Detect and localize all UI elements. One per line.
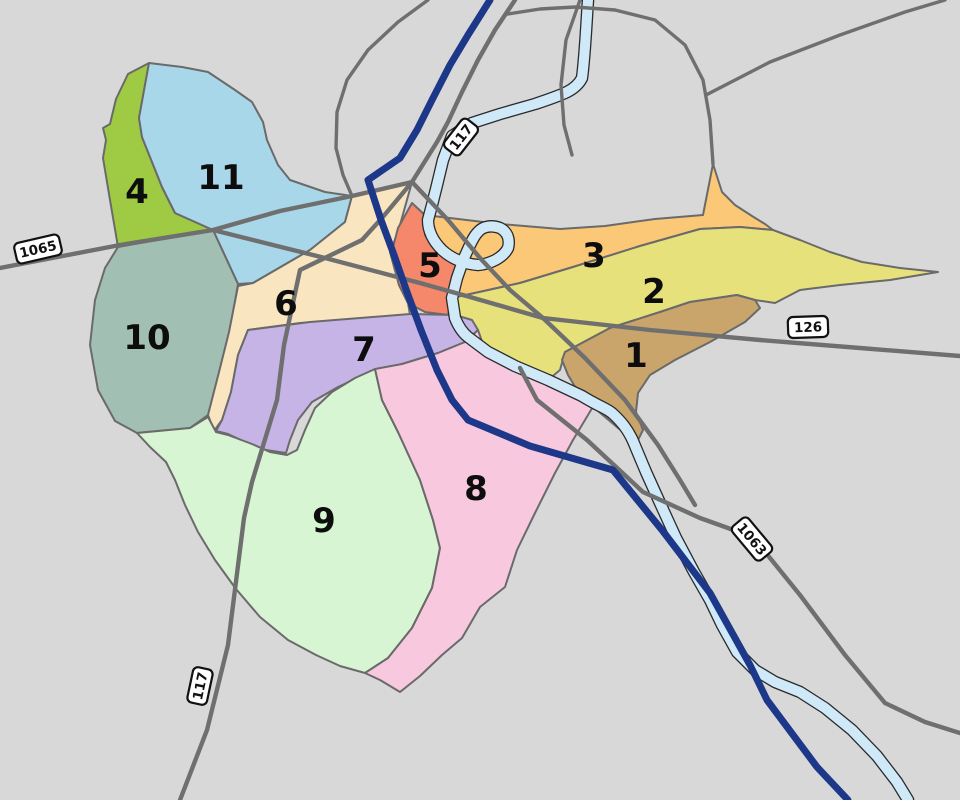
district-1-label: 1: [624, 336, 648, 376]
district-4-label: 4: [125, 172, 149, 212]
district-7-label: 7: [352, 330, 376, 370]
district-8-label: 8: [464, 469, 488, 509]
district-5-label: 5: [418, 246, 442, 286]
route-shield-126: 126: [788, 316, 829, 338]
district-9-label: 9: [312, 501, 336, 541]
district-2-label: 2: [642, 272, 666, 312]
district-6-label: 6: [274, 284, 298, 324]
district-10-label: 10: [123, 318, 170, 358]
district-3-label: 3: [582, 236, 606, 276]
svg-text:126: 126: [794, 319, 823, 336]
district-map: 1 2 3 4 5 6 7 8 9 10 11 1065 117 126 106…: [0, 0, 960, 800]
district-11-label: 11: [197, 158, 244, 198]
